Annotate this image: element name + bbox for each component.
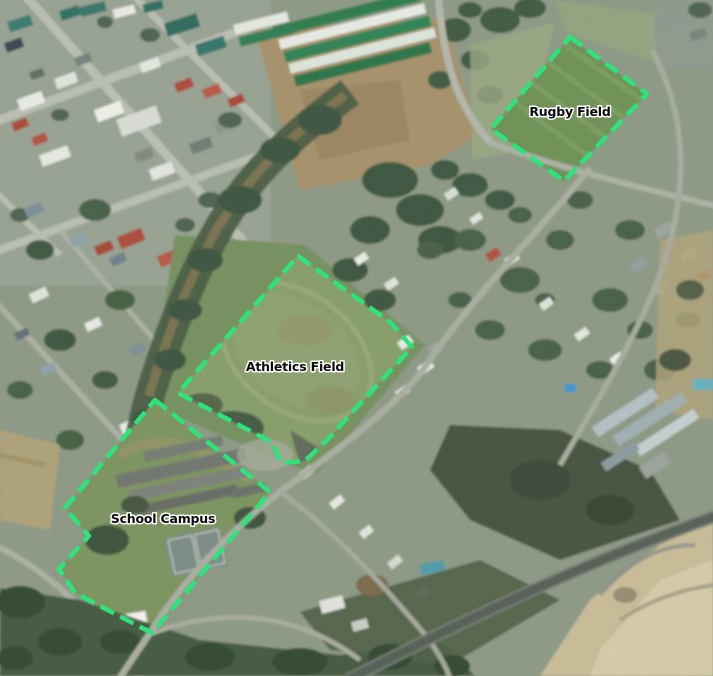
- feature-label-school-campus: School Campus: [111, 511, 215, 526]
- feature-label-athletics-field: Athletics Field: [246, 359, 344, 374]
- feature-label-rugby-field: Rugby Field: [529, 104, 610, 119]
- photo-grain: [0, 0, 713, 676]
- aerial-imagery: Rugby FieldAthletics FieldSchool Campus: [0, 0, 713, 676]
- map-canvas[interactable]: Rugby FieldAthletics FieldSchool Campus: [0, 0, 713, 676]
